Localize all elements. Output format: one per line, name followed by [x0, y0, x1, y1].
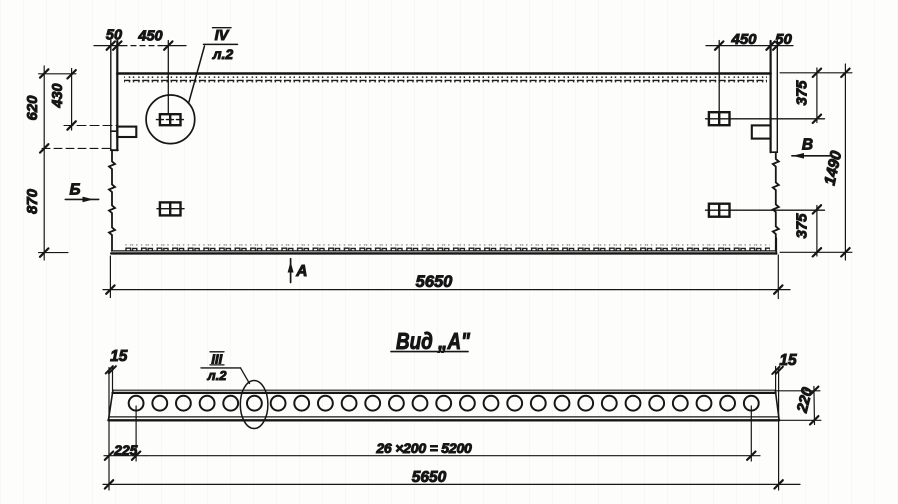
svg-text:15: 15	[110, 348, 128, 365]
svg-text:А: А	[295, 263, 307, 280]
svg-text:375: 375	[794, 80, 811, 106]
svg-text:620: 620	[24, 95, 41, 121]
svg-text:В: В	[802, 137, 813, 154]
svg-text:50: 50	[106, 28, 122, 44]
svg-text:IV: IV	[215, 28, 230, 44]
svg-text:450: 450	[730, 31, 757, 48]
svg-text:26 ×200 = 5200: 26 ×200 = 5200	[375, 440, 472, 456]
svg-text:5650: 5650	[412, 469, 447, 486]
svg-text:50: 50	[775, 31, 792, 48]
svg-text:870: 870	[24, 188, 41, 214]
svg-text:220: 220	[793, 385, 816, 415]
svg-text:5650: 5650	[416, 273, 454, 291]
svg-text:л.2: л.2	[212, 46, 234, 62]
svg-text:375: 375	[794, 213, 811, 239]
svg-text:Б: Б	[70, 182, 81, 199]
svg-text:225: 225	[113, 442, 138, 458]
svg-text:Вид „А": Вид „А"	[396, 328, 471, 354]
svg-text:1490: 1490	[822, 149, 846, 187]
svg-text:450: 450	[137, 29, 162, 45]
svg-text:430: 430	[50, 83, 66, 108]
svg-text:л.2: л.2	[207, 368, 228, 383]
